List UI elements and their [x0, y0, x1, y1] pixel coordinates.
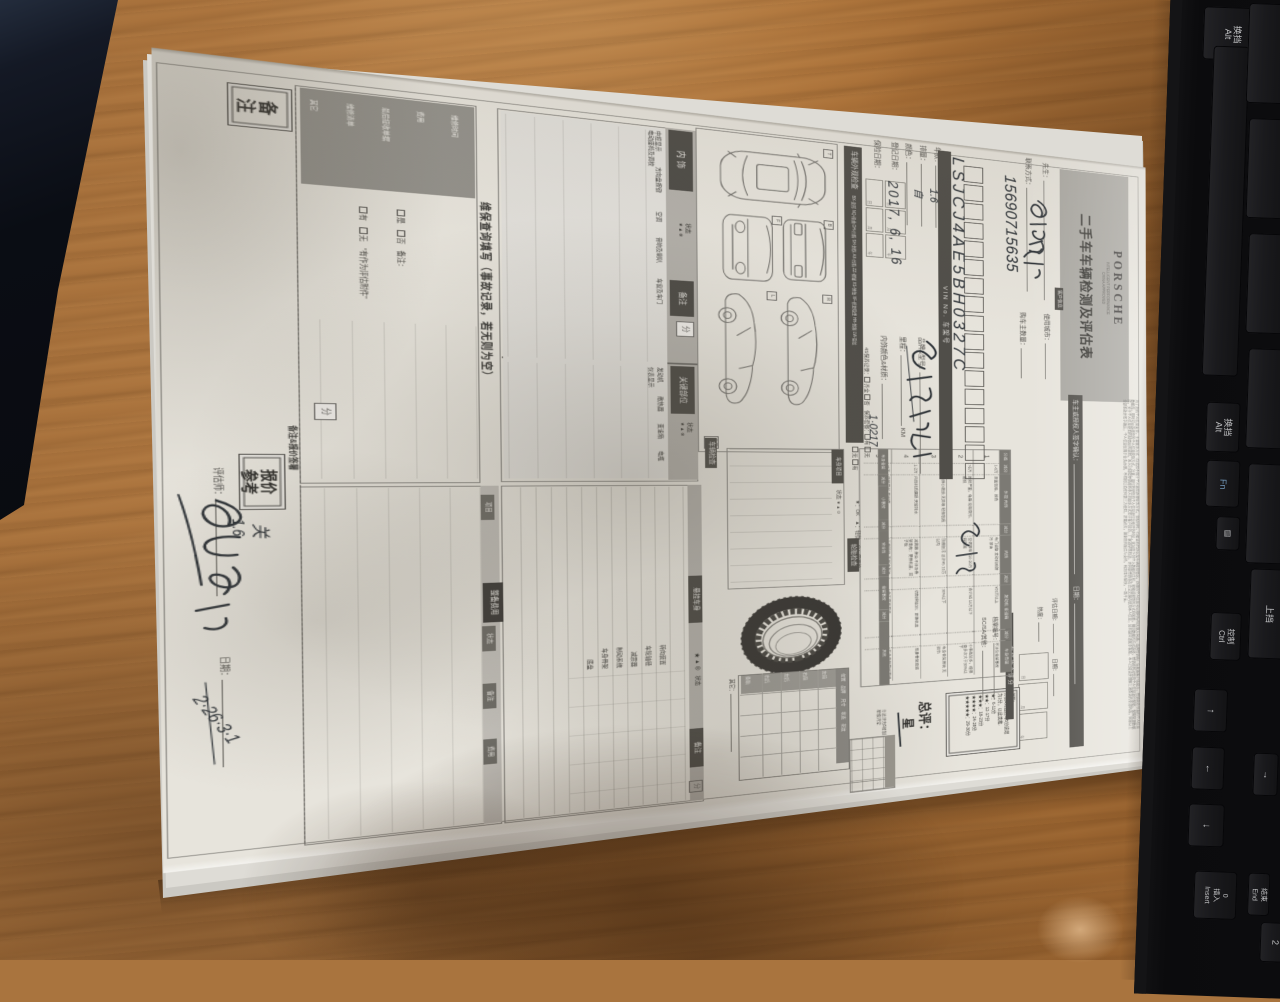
svg-text:关: 关 [249, 523, 271, 539]
svg-text:15690715635: 15690715635 [1001, 174, 1021, 273]
svg-text:1.6: 1.6 [228, 519, 247, 537]
svg-text:1·0217: 1·0217 [867, 414, 880, 447]
svg-text:2·26·3·1: 2·26·3·1 [188, 691, 245, 747]
svg-text:1.6: 1.6 [927, 188, 939, 204]
svg-text:自: 自 [912, 188, 924, 200]
svg-text:2017, 6, 16: 2017, 6, 16 [884, 180, 903, 267]
svg-text:LSJCJ4AE5BH0327C: LSJCJ4AE5BH0327C [948, 156, 968, 374]
